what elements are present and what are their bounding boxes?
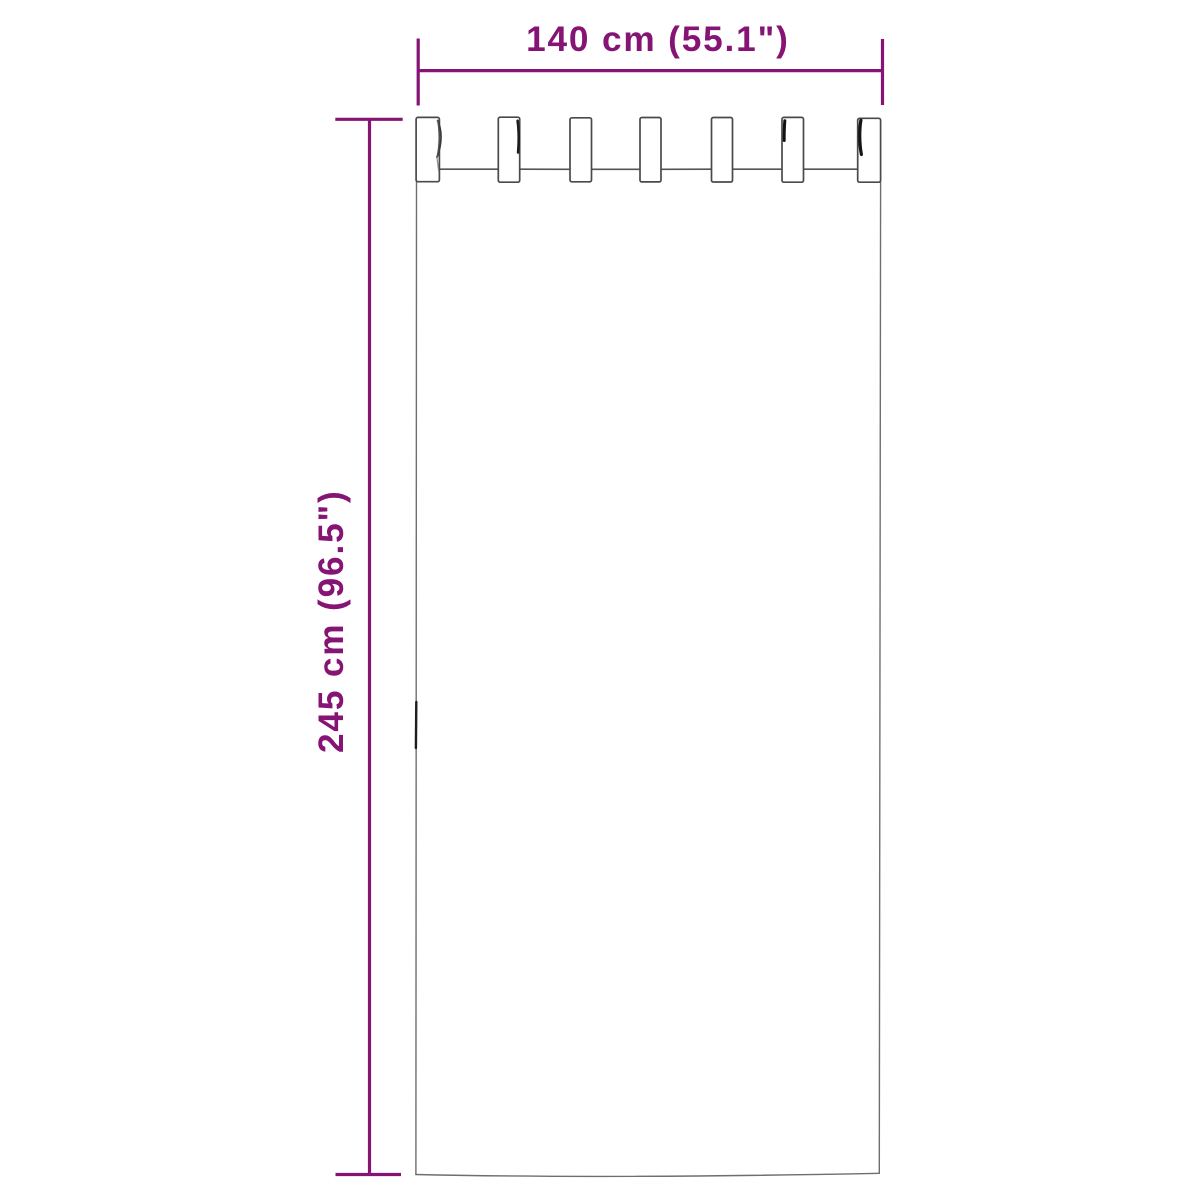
svg-text:245 cm (96.5"): 245 cm (96.5") xyxy=(312,489,351,753)
svg-text:140 cm (55.1"): 140 cm (55.1") xyxy=(526,20,790,59)
